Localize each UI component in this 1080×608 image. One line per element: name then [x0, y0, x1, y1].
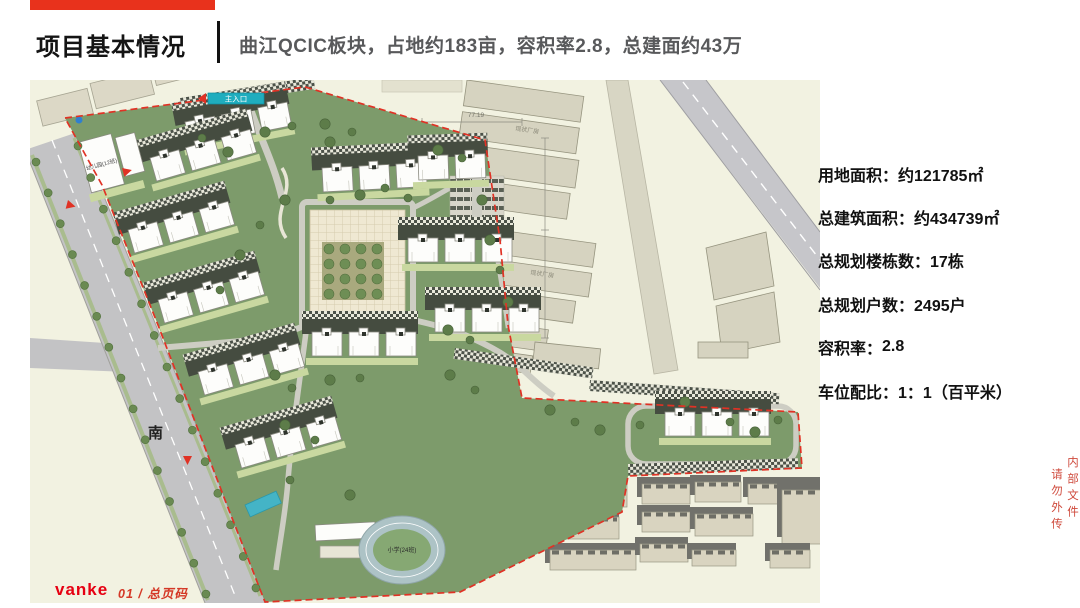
page-title: 项目基本情况	[36, 27, 186, 62]
entrance-label: 主入口	[225, 94, 248, 104]
central-plaza	[310, 210, 405, 320]
stats-panel: 用地面积：约121785㎡ 总建筑面积：约434739㎡ 总规划楼栋数：17栋 …	[818, 152, 1073, 412]
south-road-label: 南	[148, 424, 163, 442]
site-plan-svg: 现状厂房 现状厂房 65.5	[30, 80, 820, 603]
stat-land-area: 用地面积：约121785㎡	[818, 152, 1073, 195]
slide: 项目基本情况 曲江QCIC板块，占地约183亩，容积率2.8，总建面约43万	[0, 0, 1080, 608]
confidential-watermark: 内部文件 请勿外传	[1048, 456, 1080, 606]
title-divider	[217, 21, 220, 63]
vanke-logo: vanke	[55, 580, 108, 600]
stat-gfa: 总建筑面积：约434739㎡	[818, 195, 1073, 238]
stat-households: 总规划户数：2495户	[818, 282, 1073, 325]
stat-far: 容积率：2.8	[818, 326, 1073, 369]
accent-bar	[30, 0, 215, 10]
stat-parking: 车位配比：1：1（百平米）	[818, 369, 1073, 412]
page-subtitle: 曲江QCIC板块，占地约183亩，容积率2.8，总建面约43万	[239, 31, 742, 58]
dimension-label-right: 77.19	[468, 112, 485, 119]
site-corner-dot	[76, 117, 83, 124]
school-label: 小学(24班)	[388, 546, 417, 554]
stat-buildings: 总规划楼栋数：17栋	[818, 239, 1073, 282]
existing-building-topcenter	[382, 80, 462, 92]
entrance-tag: 主入口	[198, 93, 264, 104]
site-plan-map: 现状厂房 现状厂房 65.5	[30, 80, 820, 603]
page-number: 01 / 总页码	[118, 583, 188, 602]
